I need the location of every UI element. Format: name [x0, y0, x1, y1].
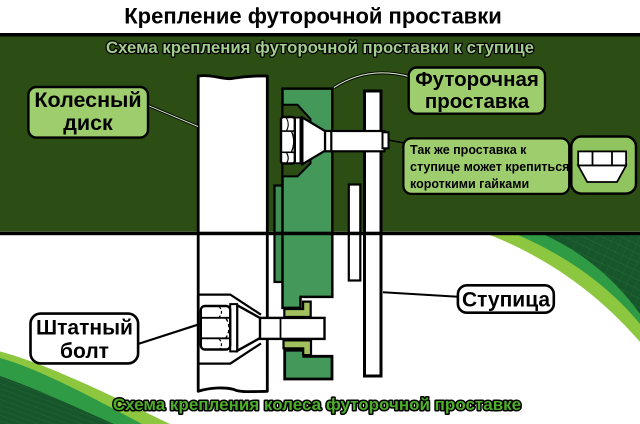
svg-text:Ступица: Ступица: [462, 289, 550, 312]
svg-text:короткими гайками: короткими гайками: [410, 177, 529, 191]
svg-text:диск: диск: [63, 111, 113, 135]
svg-text:Штатный: Штатный: [36, 317, 133, 340]
svg-text:Крепление футорочной проставки: Крепление футорочной проставки: [124, 4, 502, 29]
svg-text:проставка: проставка: [425, 90, 530, 113]
svg-text:Схема крепления футорочной про: Схема крепления футорочной проставки к с…: [106, 38, 534, 57]
svg-text:Схема крепления колеса футороч: Схема крепления колеса футорочной проста…: [113, 395, 521, 414]
svg-text:Так же проставка к: Так же проставка к: [410, 143, 527, 157]
svg-text:Футорочная: Футорочная: [415, 68, 539, 91]
svg-text:Колесный: Колесный: [34, 88, 141, 112]
svg-text:болт: болт: [60, 340, 109, 363]
svg-text:ступице может крепиться: ступице может крепиться: [410, 160, 569, 174]
